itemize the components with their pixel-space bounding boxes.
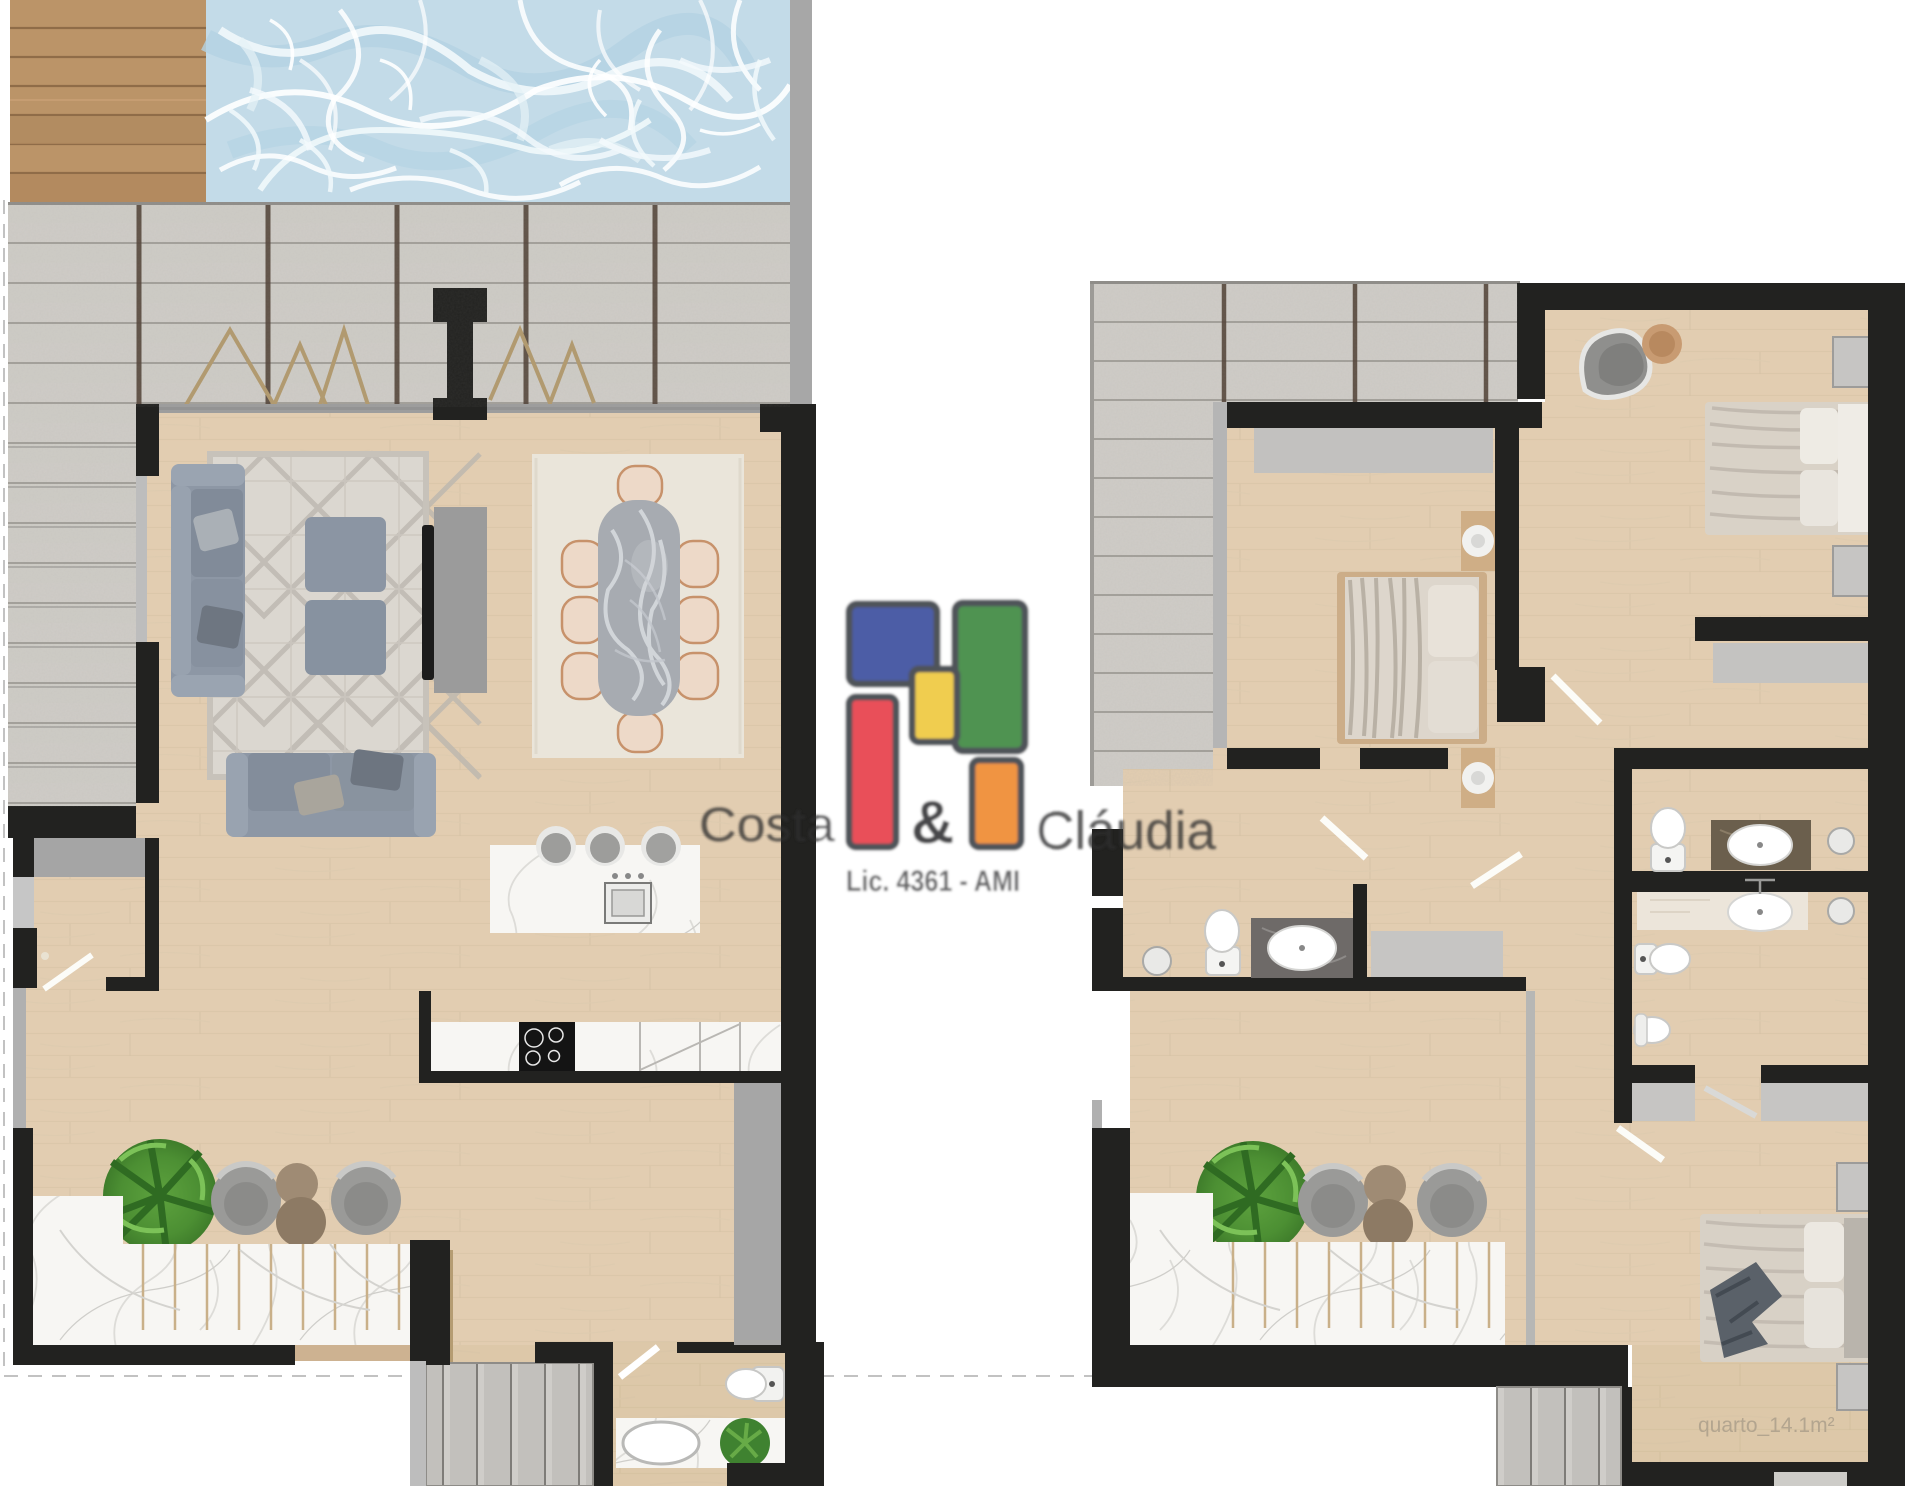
svg-text:quarto_14.1m²: quarto_14.1m² [1698,1414,1835,1437]
svg-text:&: & [911,789,954,856]
svg-text:Cláudia: Cláudia [1036,801,1217,861]
svg-text:Costa: Costa [699,799,835,852]
svg-text:Lic. 4361 - AMI: Lic. 4361 - AMI [846,865,1020,898]
